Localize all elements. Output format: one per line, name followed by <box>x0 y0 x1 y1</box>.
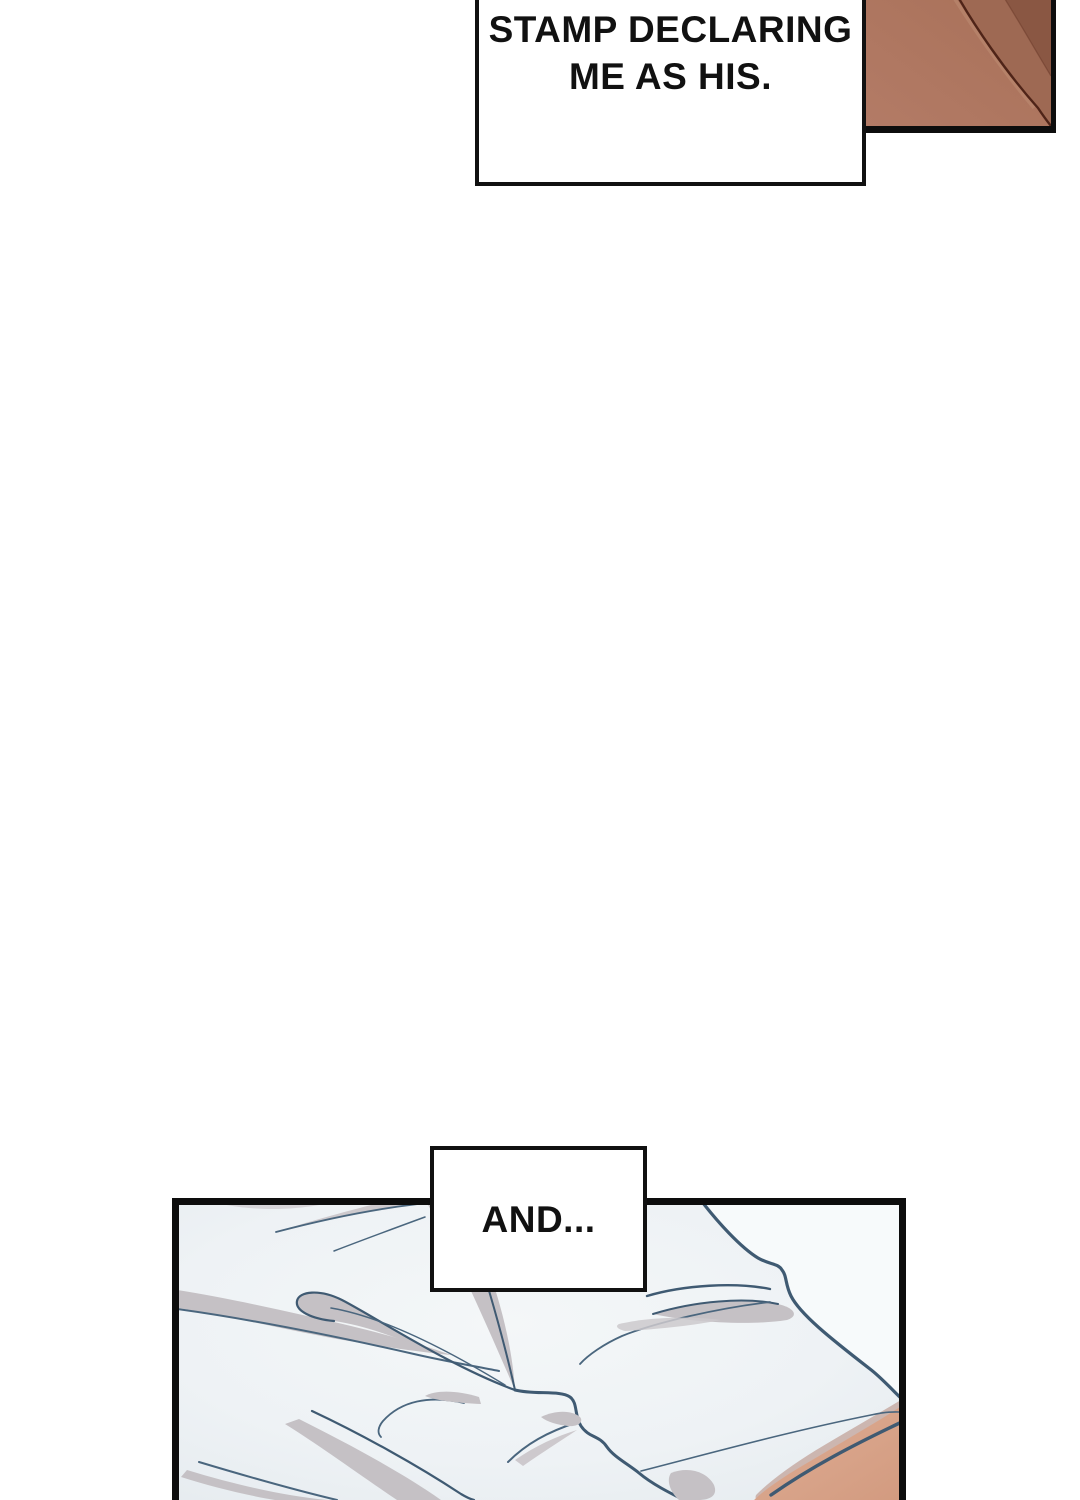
skin-closeup-panel <box>862 0 1056 133</box>
caption-line: STAMP DECLARING <box>489 6 853 53</box>
caption-box-and: AND... <box>430 1146 647 1292</box>
caption-box-top: ...IS LIKE A STAMP DECLARING ME AS HIS. <box>475 0 866 186</box>
caption-line: AND... <box>482 1196 596 1243</box>
caption-line: ME AS HIS. <box>569 53 772 100</box>
comic-page: { "captions": { "top": { "lines": ["...I… <box>0 0 1080 1500</box>
skin-closeup-art <box>866 0 1051 126</box>
